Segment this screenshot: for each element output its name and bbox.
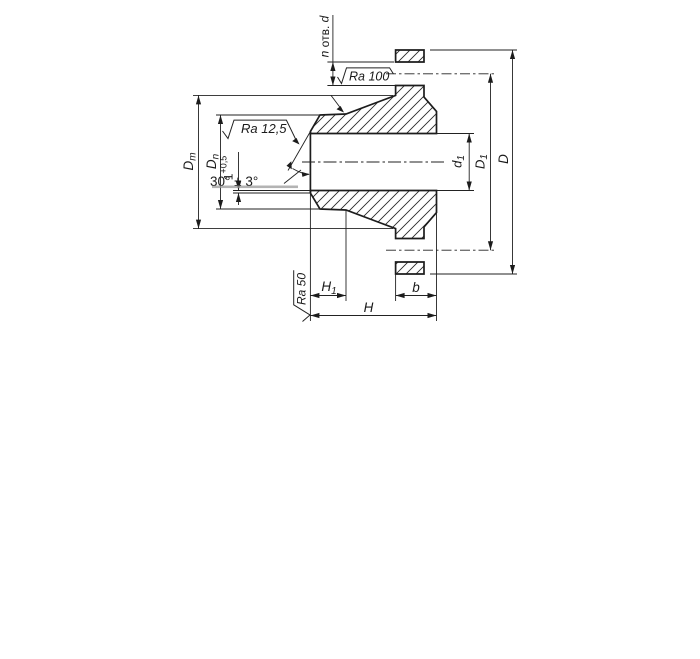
svg-text:Ra 100: Ra 100 — [349, 70, 389, 84]
svg-text:D1: D1 — [472, 154, 489, 169]
svg-text:d1: d1 — [449, 155, 466, 168]
svg-text:Dm: Dm — [181, 152, 198, 170]
svg-text:n отв. d: n отв. d — [318, 15, 332, 57]
svg-text:H1: H1 — [321, 279, 336, 297]
svg-text:Ra 50: Ra 50 — [295, 273, 309, 305]
svg-text:H: H — [364, 300, 374, 315]
svg-text:D: D — [496, 154, 511, 164]
svg-text:b: b — [412, 280, 420, 295]
svg-text:Ra 12,5: Ra 12,5 — [241, 121, 287, 136]
